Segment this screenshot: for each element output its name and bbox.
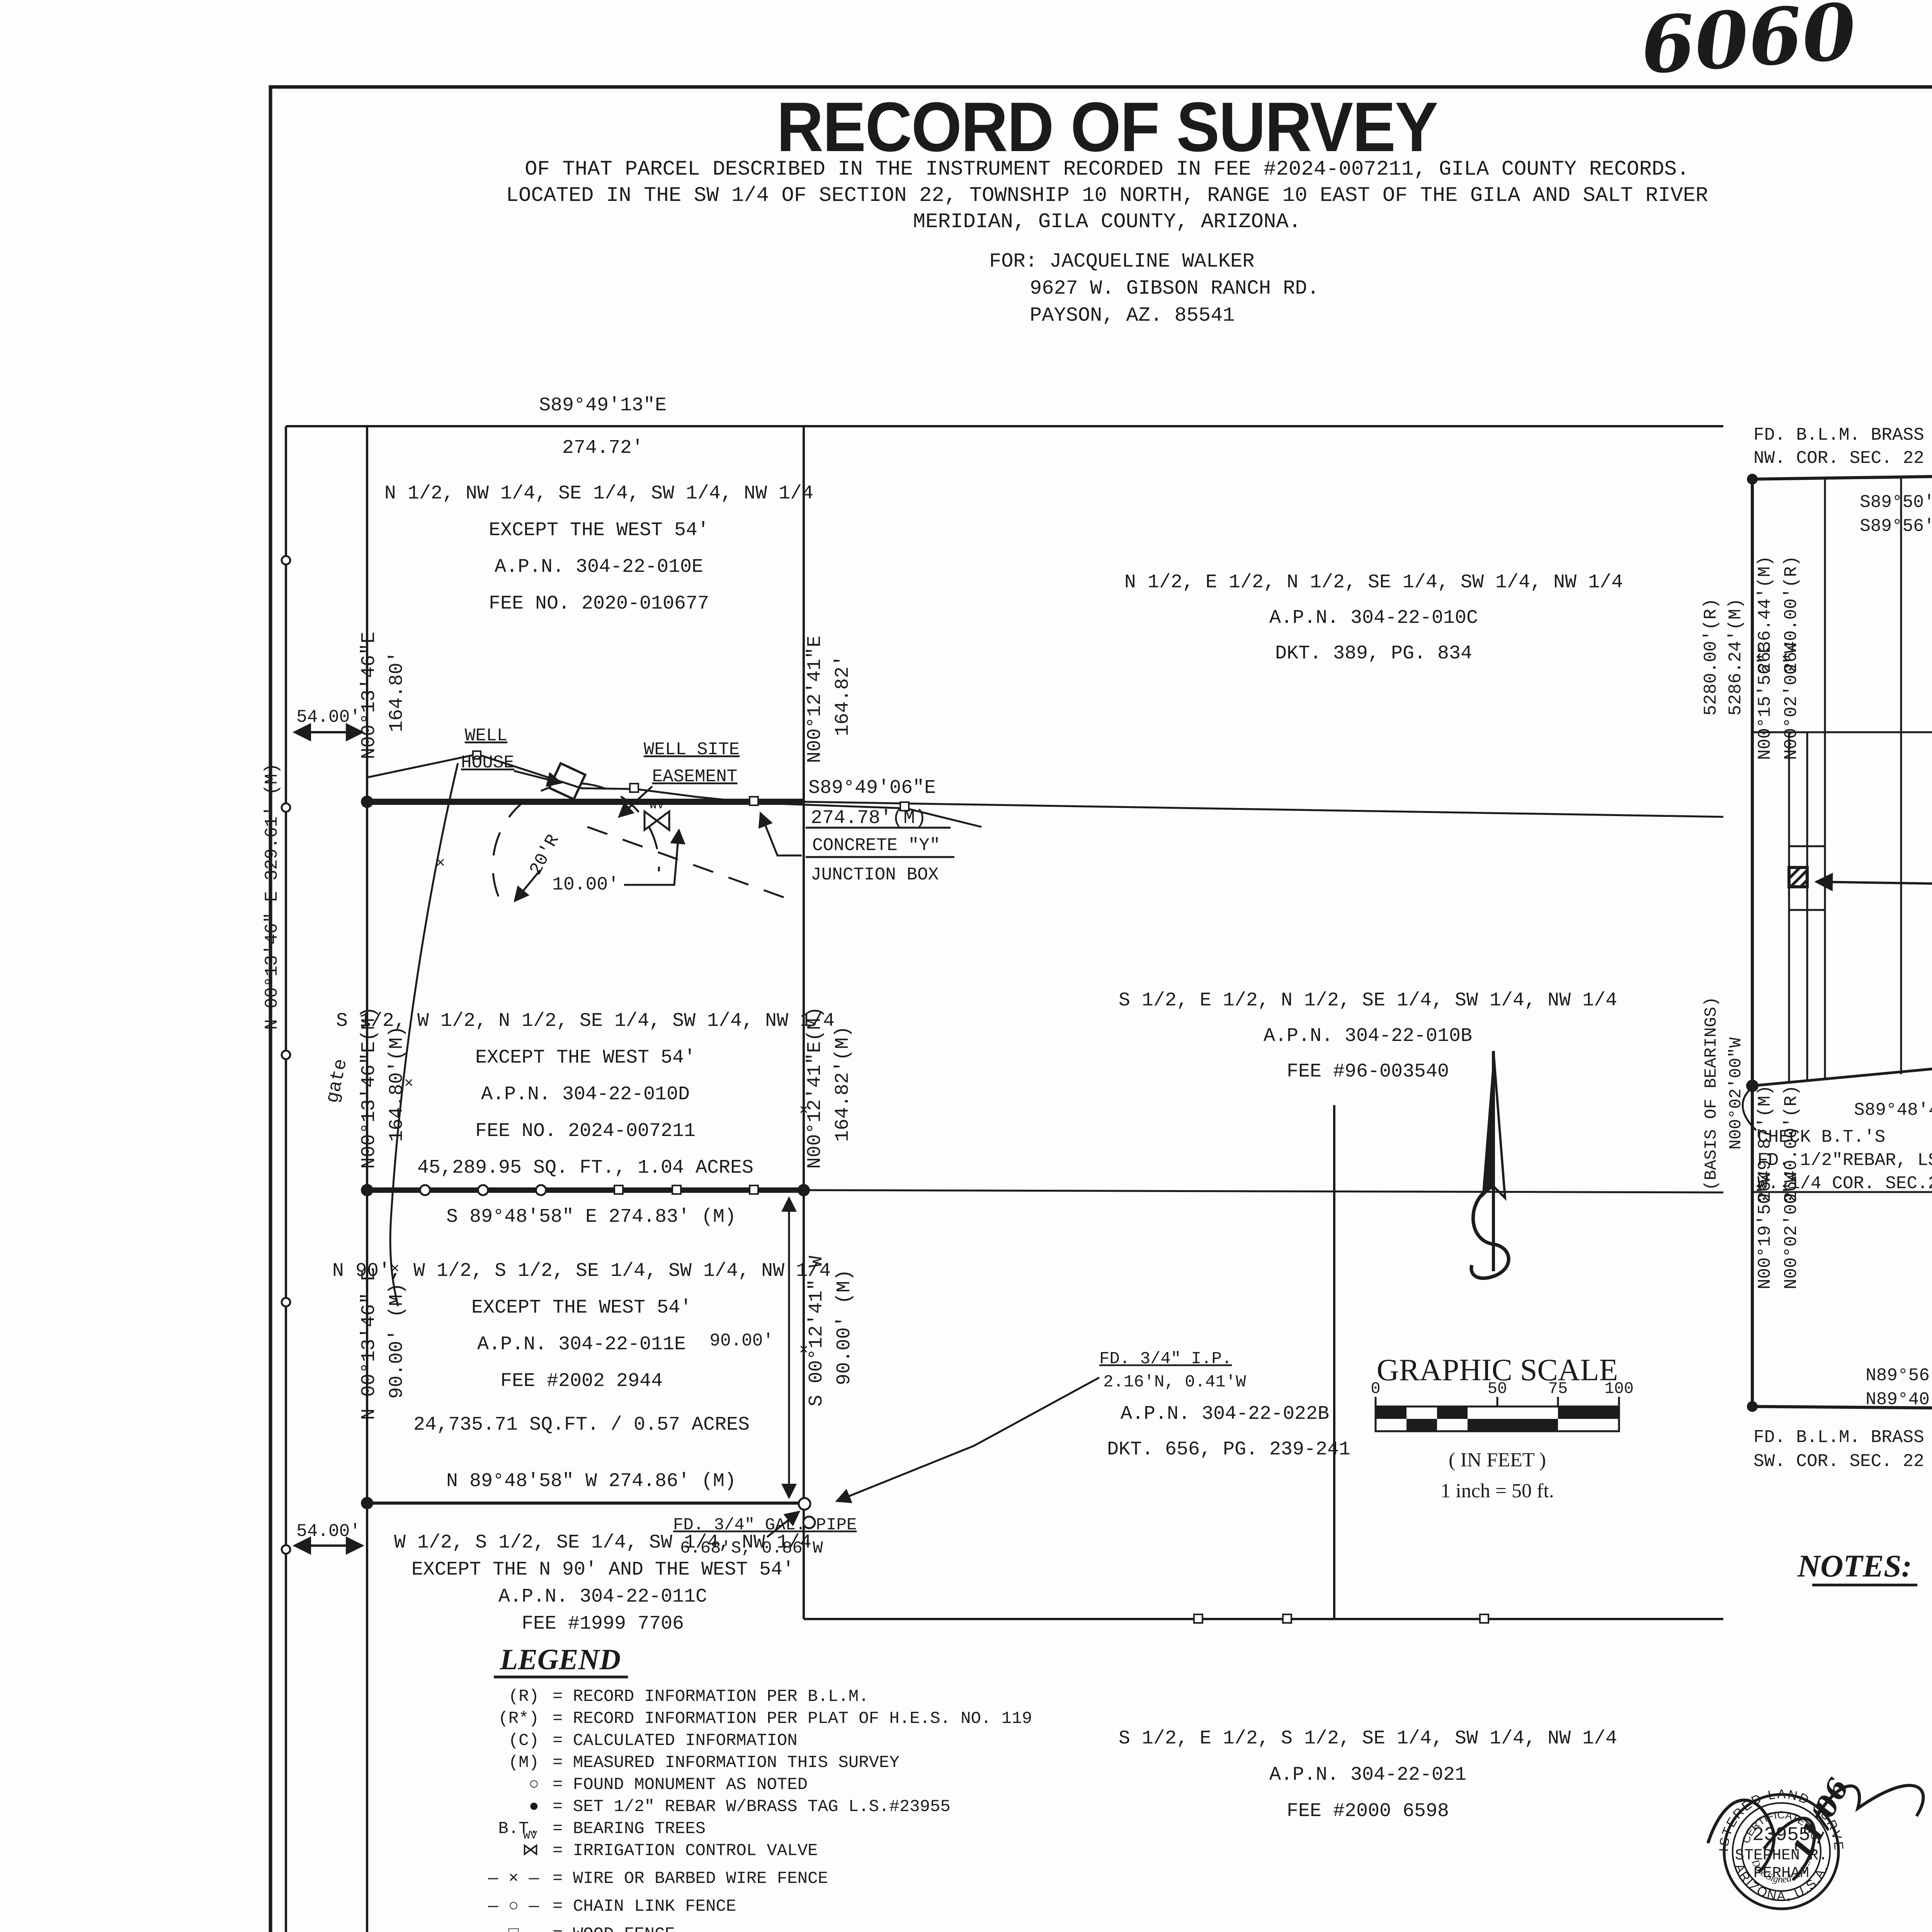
diagram-label: N00°02'00"W xyxy=(1781,643,1801,760)
diagram-label: 0 xyxy=(1371,1379,1380,1398)
diagram-label: A.P.N. 304-22-010D xyxy=(481,1083,690,1105)
plat-drawing: RECORD OF SURVEY OF THAT PARCEL DESCRIBE… xyxy=(0,0,1932,1932)
legend-items: (R)= RECORD INFORMATION PER B.L.M.(R*)= … xyxy=(488,1687,1032,1932)
diagram-label: N 00°13'46" E xyxy=(358,1269,380,1420)
diagram-label: S 89°48'58" E 274.83' (M) xyxy=(446,1206,736,1228)
title-desc-2: LOCATED IN THE SW 1/4 OF SECTION 22, TOW… xyxy=(506,184,1708,207)
diagram-label: = CALCULATED INFORMATION xyxy=(553,1731,798,1750)
diagram-label: EXCEPT THE WEST 54' xyxy=(489,519,709,541)
diagram-label: 50 xyxy=(1488,1379,1507,1398)
diagram-label: 274.78'(M) xyxy=(811,807,927,829)
diagram-label: N 89°48'58" W 274.86' (M) xyxy=(446,1470,736,1492)
diagram-label: 45,289.95 SQ. FT., 1.04 ACRES xyxy=(417,1157,753,1179)
diagram-label: WELL xyxy=(465,726,507,746)
diagram-label: 90.00' (M) xyxy=(833,1269,855,1385)
diagram-label: N00°13'46"E(M) xyxy=(358,1007,380,1169)
diagram-label: N00°13'46"E xyxy=(358,632,380,759)
diagram-label: EASEMENT xyxy=(652,767,738,787)
diagram-label: FD. 1/2"REBAR, LS #14169 xyxy=(1757,1150,1932,1170)
diagram-label: — □ — xyxy=(488,1925,539,1932)
diagram-label: N89°40'56"W xyxy=(1866,1389,1932,1410)
diagram-label: N89°56'00"W xyxy=(1866,1366,1932,1386)
title-for-2: 9627 W. GIBSON RANCH RD. xyxy=(1030,277,1319,300)
diagram-label: ⋈ xyxy=(522,1841,539,1861)
diagram-label: 5280.00'(R) xyxy=(1701,598,1721,716)
diagram-label: = BEARING TREES xyxy=(553,1819,706,1838)
notes-heading: NOTES: xyxy=(1797,1548,1912,1583)
diagram-label: 164.80'(M) xyxy=(386,1026,408,1142)
diagram-label: A.P.N. 304-22-011C xyxy=(498,1586,707,1608)
legend: LEGEND WV (R)= RECORD INFORMATION PER B.… xyxy=(488,1643,1032,1932)
title-for-3: PAYSON, AZ. 85541 xyxy=(1030,304,1235,327)
diagram-label: A.P.N. 304-22-022B xyxy=(1121,1403,1329,1425)
diagram-label: 164.80' xyxy=(386,651,408,732)
diagram-label: DKT. 656, PG. 239-241 xyxy=(1107,1439,1350,1461)
page-title: RECORD OF SURVEY xyxy=(777,88,1437,166)
graphic-scale: GRAPHIC SCALE 05075100 ( IN FEET ) 1 inc… xyxy=(1371,1051,1633,1502)
title-for-1: FOR: JACQUELINE WALKER xyxy=(989,250,1255,273)
diagram-label: FD. B.L.M. BRASS CAP xyxy=(1753,1427,1932,1447)
diagram-label: N00°02'00"W xyxy=(1726,1037,1746,1150)
diagram-label: (C) xyxy=(509,1731,539,1750)
diagram-label: (BASIS OF BEARINGS) xyxy=(1702,997,1721,1190)
handwritten-map-number-top: 6060 xyxy=(1638,0,1859,92)
diagram-label: 274.72' xyxy=(562,437,643,459)
diagram-label: 20'R xyxy=(526,831,564,878)
parcel-diagram-labels: S89°49'13"E274.72'N 1/2, NW 1/4, SE 1/4,… xyxy=(262,395,1623,1822)
parcel-diagram: × × × × × xyxy=(282,426,1723,1932)
diagram-label: FEE NO. 2024-007211 xyxy=(475,1120,696,1142)
diagram-label: = WIRE OR BARBED WIRE FENCE xyxy=(553,1869,828,1888)
diagram-label: WELL SITE xyxy=(644,740,740,760)
diagram-label: FEE #2000 6598 xyxy=(1287,1800,1449,1822)
diagram-label: 164.82' xyxy=(832,655,854,736)
diagram-label: EXCEPT THE WEST 54' xyxy=(471,1297,692,1319)
diagram-label: A.P.N. 304-22-010C xyxy=(1269,607,1478,629)
section-diagram-labels: FD. B.L.M. BRASS CAPNW. COR. SEC. 22 - 1… xyxy=(1701,417,1932,1475)
diagram-label: FD. 3/4" I.P. xyxy=(1099,1349,1232,1369)
scale-units: ( IN FEET ) xyxy=(1449,1449,1546,1471)
diagram-label: DKT. 389, PG. 834 xyxy=(1275,643,1472,665)
diagram-label: N 90', W 1/2, S 1/2, SE 1/4, SW 1/4, NW … xyxy=(332,1260,831,1282)
diagram-label: HOUSE xyxy=(461,753,514,773)
diagram-label: 54.00' xyxy=(296,1521,361,1541)
title-desc-1: OF THAT PARCEL DESCRIBED IN THE INSTRUME… xyxy=(525,158,1689,181)
diagram-label: FD. B.L.M. BRASS CAP xyxy=(1753,425,1932,445)
diagram-label: S 00°12'41" W xyxy=(806,1256,828,1406)
diagram-label: FEE #2002 2944 xyxy=(500,1370,663,1392)
diagram-label: 24,735.71 SQ.FT. / 0.57 ACRES xyxy=(413,1414,750,1436)
diagram-label: 75 xyxy=(1548,1379,1568,1398)
diagram-label: S89°56'00"E xyxy=(1860,516,1932,536)
diagram-label: A.P.N. 304-22-021 xyxy=(1269,1764,1466,1786)
diagram-label: ● xyxy=(529,1797,539,1816)
diagram-label: = CHAIN LINK FENCE xyxy=(553,1897,736,1916)
diagram-label: (M) xyxy=(509,1753,539,1772)
notes-block: NOTES: THE E. 1/4 CORNER WAS ESTABLISHED… xyxy=(1797,1548,1932,1730)
diagram-label: S89°50'49"E xyxy=(1860,492,1932,512)
diagram-label: S 1/2, E 1/2, N 1/2, SE 1/4, SW 1/4, NW … xyxy=(1119,990,1617,1012)
diagram-label: EXCEPT THE N 90' AND THE WEST 54' xyxy=(412,1559,794,1581)
diagram-label: 5286.24'(M) xyxy=(1726,598,1746,716)
diagram-label: 10.00' xyxy=(552,874,619,895)
diagram-label: N00°12'41"E(M) xyxy=(804,1007,826,1169)
diagram-label: = FOUND MONUMENT AS NOTED xyxy=(553,1775,808,1794)
diagram-label: FEE #96-003540 xyxy=(1287,1061,1449,1083)
diagram-label: — ○ — xyxy=(488,1897,539,1916)
diagram-label: ○ xyxy=(529,1775,539,1794)
diagram-label: B.T. xyxy=(498,1819,539,1838)
surveyor-seal: REGISTERED LAND SURVEYOR ARIZONA, U.S.A.… xyxy=(0,0,1923,1909)
diagram-label: W. 1/4 COR. SEC.22 xyxy=(1757,1173,1932,1194)
diagram-label: A.P.N. 304-22-011E xyxy=(477,1333,686,1355)
diagram-label: = IRRIGATION CONTROL VALVE xyxy=(553,1841,818,1861)
survey-sheet: RECORD OF SURVEY OF THAT PARCEL DESCRIBE… xyxy=(0,0,1932,1932)
diagram-label: S89°49'06"E xyxy=(808,777,936,799)
diagram-label: CONCRETE "Y" xyxy=(812,835,940,855)
diagram-label: S 1/2, W 1/2, N 1/2, SE 1/4, SW 1/4, NW … xyxy=(336,1010,835,1032)
diagram-label: A.P.N. 304-22-010B xyxy=(1264,1025,1472,1047)
scale-bar xyxy=(1376,1397,1619,1431)
diagram-label: N 00°13'46" E 329.61' (M) xyxy=(262,763,282,1030)
diagram-label: 164.82'(M) xyxy=(832,1026,854,1142)
title-block: RECORD OF SURVEY OF THAT PARCEL DESCRIBE… xyxy=(506,88,1708,327)
diagram-label: 100 xyxy=(1604,1379,1634,1398)
diagram-label: (R*) xyxy=(498,1709,539,1728)
diagram-label: NW. COR. SEC. 22 - 1968 xyxy=(1753,448,1932,468)
diagram-label: N 1/2, NW 1/4, SE 1/4, SW 1/4, NW 1/4 xyxy=(384,483,813,505)
diagram-label: 2.16'N, 0.41'W xyxy=(1103,1372,1246,1392)
diagram-label: = RECORD INFORMATION PER PLAT OF H.E.S. … xyxy=(553,1709,1032,1728)
diagram-label: S89°49'13"E xyxy=(539,395,667,417)
legend-title: LEGEND xyxy=(500,1643,621,1676)
diagram-label: 54.00' xyxy=(296,707,361,727)
diagram-label: A.P.N. 304-22-010E xyxy=(495,556,703,578)
diagram-label: S89°48'42"E xyxy=(1854,1100,1932,1120)
diagram-label: SW. COR. SEC. 22 - 1968 xyxy=(1753,1451,1932,1471)
diagram-label: N 1/2, E 1/2, N 1/2, SE 1/4, SW 1/4, NW … xyxy=(1124,571,1623,594)
diagram-label: S 1/2, E 1/2, S 1/2, SE 1/4, SW 1/4, NW … xyxy=(1119,1728,1617,1750)
diagram-label: = SET 1/2" REBAR W/BRASS TAG L.S.#23955 xyxy=(553,1797,951,1816)
diagram-label: N00°15'56"E xyxy=(1755,643,1775,760)
svg-text:×: × xyxy=(436,855,445,872)
diagram-label: N00°12'41"E xyxy=(804,636,826,763)
diagram-label: 90.00' xyxy=(709,1331,774,1351)
diagram-label: gate xyxy=(322,1057,352,1105)
diagram-label: JUNCTION BOX xyxy=(811,865,939,885)
diagram-label: CHECK B.T.'S xyxy=(1757,1127,1885,1147)
diagram-label: — × — xyxy=(488,1869,539,1888)
title-desc-3: MERIDIAN, GILA COUNTY, ARIZONA. xyxy=(913,210,1301,234)
diagram-label: WV xyxy=(650,798,665,812)
diagram-label: 90.00' (M) xyxy=(386,1283,408,1399)
diagram-label: = WOOD FENCE xyxy=(553,1925,675,1932)
diagram-label: FEE NO. 2020-010677 xyxy=(489,593,709,615)
diagram-label: (R) xyxy=(509,1687,539,1706)
diagram-label: EXCEPT THE WEST 54' xyxy=(475,1047,696,1069)
diagram-label: FEE #1999 7706 xyxy=(522,1613,684,1635)
subject-property-hatch xyxy=(1789,867,1807,887)
scale-ratio: 1 inch = 50 ft. xyxy=(1440,1480,1554,1502)
diagram-label: = MEASURED INFORMATION THIS SURVEY xyxy=(553,1753,900,1772)
diagram-label: W 1/2, S 1/2, SE 1/4, SW 1/4, NW 1/4 xyxy=(394,1532,811,1554)
diagram-label: = RECORD INFORMATION PER B.L.M. xyxy=(553,1687,869,1706)
